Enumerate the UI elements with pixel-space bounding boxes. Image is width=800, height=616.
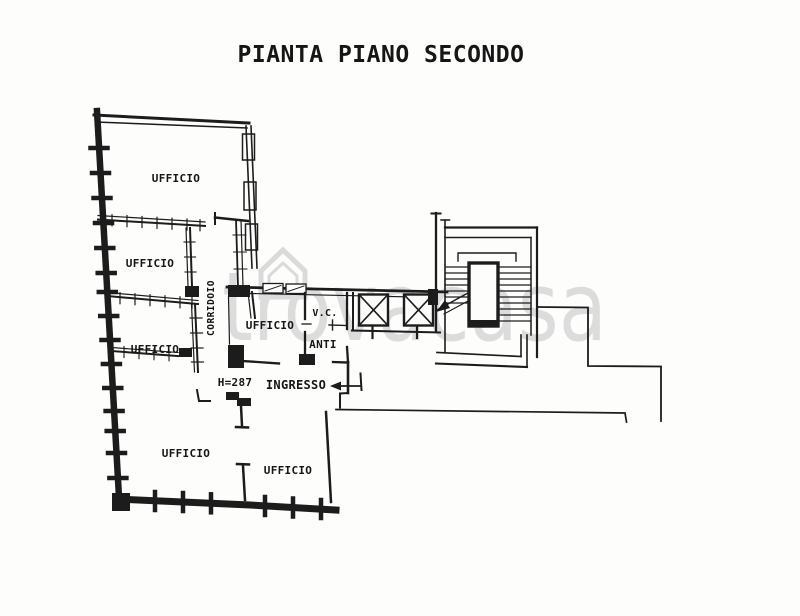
corner-block: [112, 493, 130, 511]
room1-right-wall: [243, 126, 258, 268]
outer-wall-left: [97, 111, 119, 497]
wall-room2-right: [184, 228, 199, 297]
room-label-ufficio-bottom-left: UFFICIO: [162, 447, 211, 460]
wall-footing: [179, 348, 192, 357]
outer-wall-top: [94, 115, 249, 123]
room-label-ufficio-second: UFFICIO: [126, 257, 175, 270]
elevator-1: [359, 295, 388, 326]
room-label-anti: ANTI: [309, 338, 337, 351]
room-label-ufficio-bottom-center: UFFICIO: [264, 464, 313, 477]
boundary-line-lower: [336, 410, 627, 423]
stair-bottom-outer: [436, 364, 527, 368]
room-label-vc: V.C.: [312, 308, 337, 319]
height-annotation: H=287: [218, 376, 253, 389]
floor-plan-scan: trovacasa PIANTA PIANO SECONDO: [0, 0, 800, 616]
wall-room2-room3: [107, 293, 198, 309]
room-label-ufficio-third: UFFICIO: [131, 343, 180, 356]
wall-footing: [185, 286, 199, 297]
plan-title: PIANTA PIANO SECONDO: [238, 42, 525, 68]
wall-footing: [299, 354, 315, 365]
room-label-ufficio-center: UFFICIO: [246, 319, 295, 332]
floor-plan-svg: trovacasa PIANTA PIANO SECONDO: [0, 0, 800, 616]
wall-room1-room2: [98, 213, 248, 231]
room-label-ufficio-top: UFFICIO: [152, 172, 201, 185]
outer-wall-bottom: [116, 499, 336, 510]
room-label-ingresso: INGRESSO: [266, 378, 326, 392]
room-label-corridoio: CORRIDOIO: [206, 280, 217, 336]
entrance-arrow: [330, 374, 362, 391]
stair-core: [469, 263, 498, 326]
wall-room4-room5: [226, 392, 251, 500]
wall-room5-right: [326, 412, 331, 502]
stair-steps-left: [446, 267, 469, 303]
stair-core-base: [470, 320, 497, 327]
wall-footing-block: [228, 345, 244, 368]
wall-ingresso-right: [340, 362, 348, 408]
